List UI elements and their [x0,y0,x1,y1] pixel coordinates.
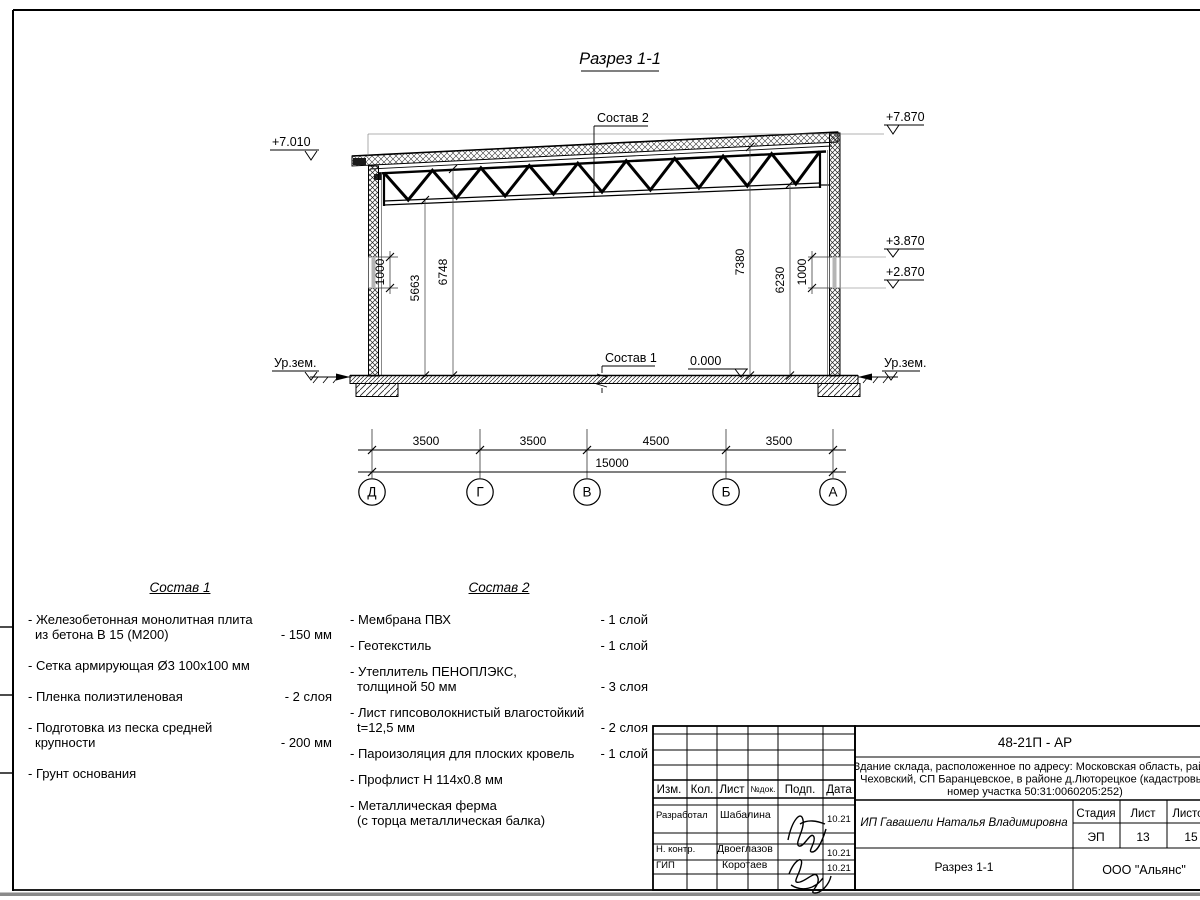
ground-line-left [310,374,350,384]
dim-5663: 5663 [408,274,422,301]
list-item: - Металлическая ферма(с торца металличес… [350,798,648,828]
name-developer: Шабалина [720,809,771,821]
axis-label-b: Б [722,485,731,500]
list-item: - Лист гипсоволокнистый влагостойкийt=12… [350,705,648,735]
signature-2 [789,860,831,893]
list-item: - Железобетонная монолитная плитаиз бето… [28,612,332,642]
stage-value: ЭП [1087,830,1104,844]
dim-6748: 6748 [436,258,450,285]
elevation-zero: 0.000 [688,354,748,377]
col-kol: Кол. [691,784,714,796]
axis-bubbles: Д Г В Б А [359,479,846,505]
drawing-title-text: Разрез 1-1 [579,50,661,68]
sheets-label: Листов [1172,808,1200,820]
sostav1-list: Состав 1 - Железобетонная монолитная пли… [28,580,332,797]
axis-dimensions: 3500 3500 4500 3500 15000 Д Г В Б А [358,429,846,505]
title-block: Изм. Кол. Лист №док. Подп. Дата Разработ… [653,726,1200,893]
list-item: - Сетка армирующая Ø3 100х100 мм [28,658,332,673]
svg-text:+2.870: +2.870 [886,265,925,279]
sostav2-list: Состав 2 - Мембрана ПВХ - 1 слой - Геоте… [350,580,648,839]
sostav1-title: Состав 1 [28,580,332,595]
role-ncontrol: Н. контр. [656,844,695,855]
name-ncontrol: Двоеглазов [717,843,773,855]
col-izm: Изм. [657,784,682,796]
project-code: 48-21П - АР [998,735,1072,750]
client-name: ИП Гавашели Наталья Владимировна [860,817,1067,829]
drawing-sheet: Разрез 1-1 [0,0,1200,900]
list-item: - Пленка полиэтиленовая - 2 слоя [28,689,332,704]
dim-span-3: 4500 [643,434,670,448]
ground-mark-left: Ур.зем. [272,356,319,380]
svg-text:Ур.зем.: Ур.зем. [274,356,316,370]
svg-text:Ур.зем.: Ур.зем. [884,356,926,370]
company-name: ООО "Альянс" [1102,863,1186,877]
dim-span-1: 3500 [413,434,440,448]
dim-right-window: 1000 [795,258,809,285]
elevation-right-upper: +3.870 [841,234,925,257]
axis-label-g: Г [476,485,484,500]
title-block-right: 48-21П - АР Здание склада, расположенное… [853,735,1200,877]
date-developer: 10.21 [827,814,851,825]
foundation-right [818,384,860,397]
sheets-total: 15 [1184,830,1198,844]
sostav2-title: Состав 2 [350,580,648,595]
doc-name: Разрез 1-1 [935,860,994,874]
list-item: - Подготовка из песка среднейкрупности -… [28,720,332,750]
dim-7380: 7380 [733,248,747,275]
roof-edge-plate [353,158,366,165]
list-item: - Геотекстиль - 1 слой [350,638,648,653]
dim-total: 15000 [595,456,629,470]
axis-label-a: А [828,485,837,500]
foundation-left [356,384,398,397]
title-block-signature-rows: Разработал Шабалина 10.21 Н. контр. Двое… [656,809,851,893]
col-data: Дата [826,784,852,796]
svg-text:+7.010: +7.010 [272,135,311,149]
sheet-label: Лист [1131,808,1157,820]
signature-1 [788,816,826,852]
stage-label: Стадия [1076,808,1115,820]
project-desc-1: Здание склада, расположенное по адресу: … [853,761,1200,773]
elevation-left-top: +7.010 [270,135,319,160]
axis-label-v: В [582,485,591,500]
list-item: - Пароизоляция для плоских кровель - 1 с… [350,746,648,761]
date-gip: 10.21 [827,863,851,874]
dim-span-4: 3500 [766,434,793,448]
role-developer: Разработал [656,810,708,821]
list-item: - Грунт основания [28,766,332,781]
svg-text:Состав 2: Состав 2 [597,111,649,125]
list-item: - Мембрана ПВХ - 1 слой [350,612,648,627]
ground-mark-right: Ур.зем. [882,356,926,380]
svg-text:Состав 1: Состав 1 [605,351,657,365]
list-item: - Профлист Н 114х0.8 мм [350,772,648,787]
drawing-title: Разрез 1-1 [579,50,661,71]
list-item: - Утеплитель ПЕНОПЛЭКС,толщиной 50 мм - … [350,664,648,694]
col-podp: Подп. [785,784,816,796]
right-wall [828,133,841,376]
building-section [310,132,898,397]
date-ncontrol: 10.21 [827,848,851,859]
project-desc-2: Чеховский, СП Баранцевское, в районе д.Л… [860,774,1200,786]
axis-label-d: Д [367,485,376,500]
svg-text:+3.870: +3.870 [886,234,925,248]
project-desc-3: номер участка 50:31:0060205:252) [947,786,1123,798]
dim-left-window: 1000 [373,258,387,285]
name-gip: Коротаев [722,859,768,871]
sheet-number: 13 [1136,830,1150,844]
col-list: Лист [720,784,746,796]
svg-text:+7.870: +7.870 [886,110,925,124]
elevation-right-lower: +2.870 [841,265,925,288]
role-gip: ГИП [656,860,675,871]
vertical-dimensions: 1000 5663 6748 7380 6230 1000 [373,143,832,380]
svg-text:0.000: 0.000 [690,354,721,368]
leader-sostav1: Состав 1 [597,351,657,393]
col-ndok: №док. [751,784,776,794]
dim-span-2: 3500 [520,434,547,448]
dim-6230: 6230 [773,266,787,293]
